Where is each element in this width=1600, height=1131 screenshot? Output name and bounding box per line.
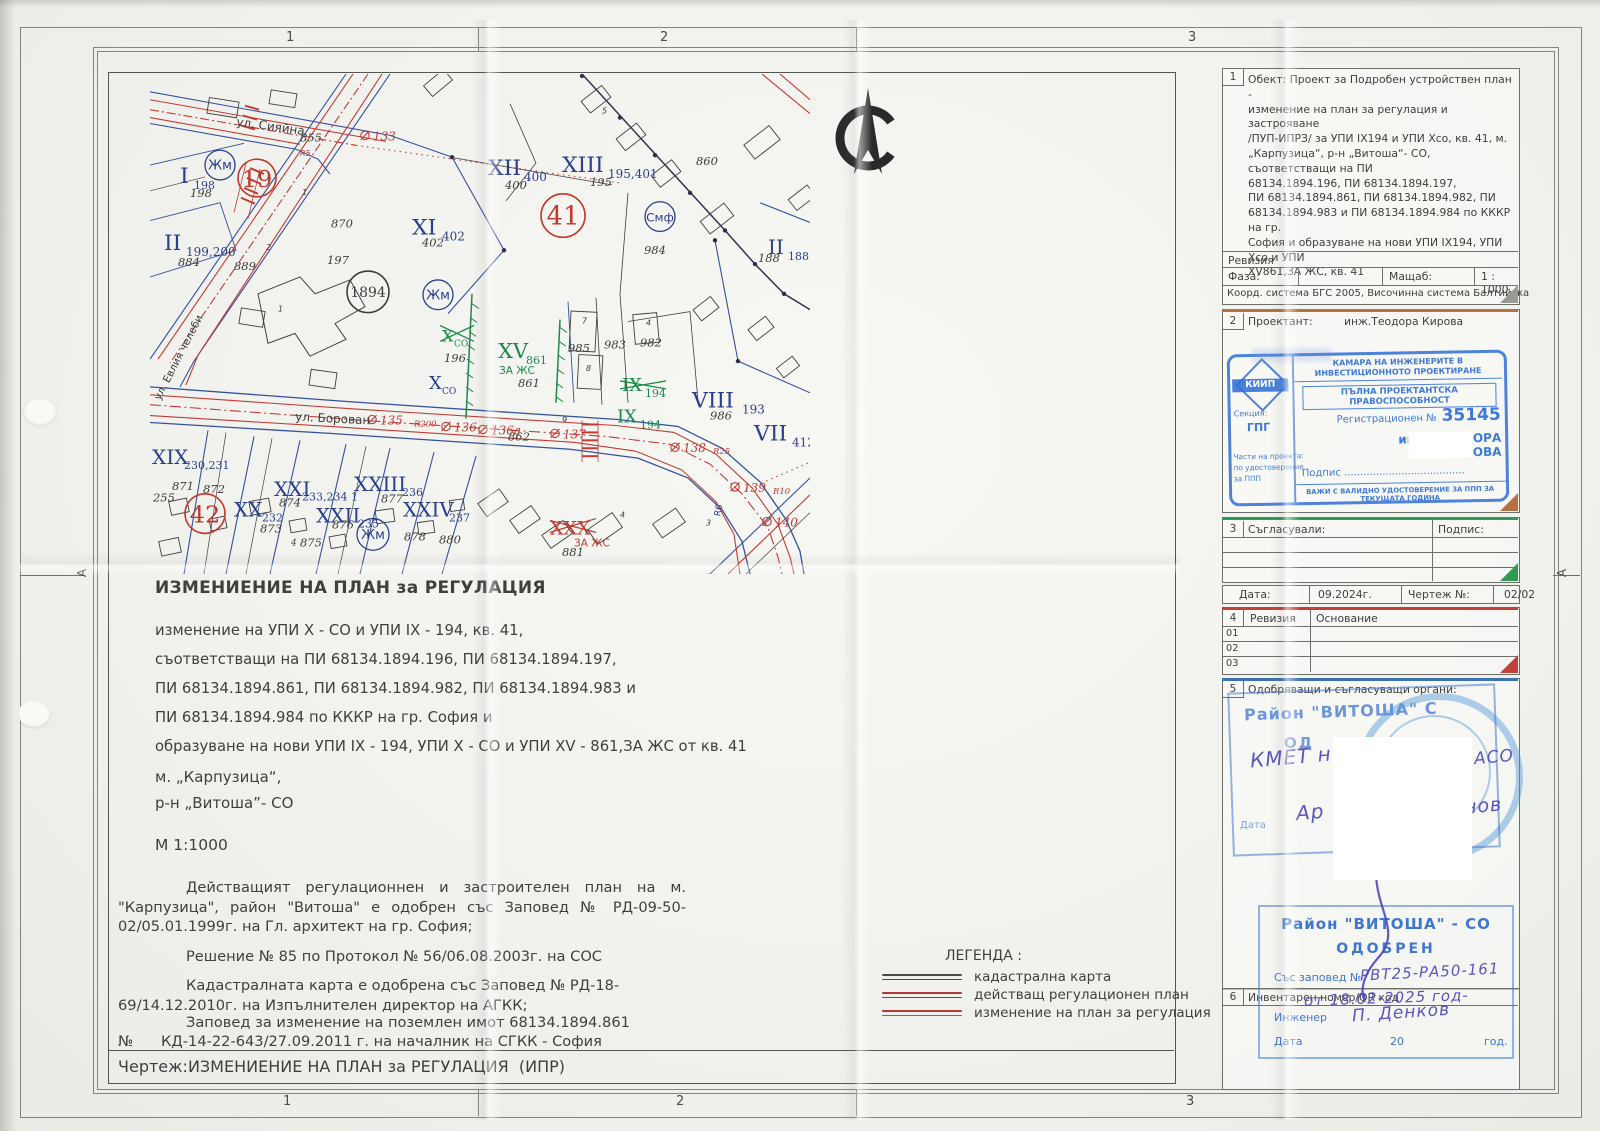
divider <box>1222 626 1518 627</box>
map-label: 233,234 1 <box>302 491 358 504</box>
revision-row-01: 01 <box>1226 628 1238 639</box>
legend-items: кадастрална картадействащ регулационен п… <box>882 968 1211 1022</box>
footer-bar: Чертеж:ИЗМЕНИЕНИЕ НА ПЛАН за РЕГУЛАЦИЯ (… <box>108 1050 1174 1083</box>
map-building-outline <box>258 277 365 356</box>
zone-number-top-2: 2 <box>660 30 668 45</box>
kiip-smudge <box>1252 348 1332 363</box>
map-label: 884 <box>178 255 200 269</box>
date-row: Дата: 09.2024г. Чертеж №: 02/02 <box>1222 585 1520 604</box>
map-line <box>150 387 804 574</box>
map-label: 7 <box>582 317 587 326</box>
zone-tick <box>478 27 479 51</box>
map-label: 188 <box>758 251 780 265</box>
map-label: СО <box>454 339 468 349</box>
map-building <box>653 508 686 538</box>
divider <box>1222 552 1518 553</box>
map-station-label: 136 <box>454 420 477 434</box>
map-label: XXIV <box>403 499 454 522</box>
map-label: 193 <box>742 403 765 417</box>
map-label: 4 <box>620 511 625 520</box>
map-label: 2 <box>266 243 271 252</box>
stamp-god: год. <box>1484 1035 1508 1048</box>
zone-tick <box>856 27 857 51</box>
map-label: 400 <box>504 178 527 192</box>
legend-item-label: кадастрална карта <box>974 969 1111 985</box>
map-label: 188 <box>788 250 809 263</box>
map-line <box>466 294 472 419</box>
map-line <box>780 74 810 100</box>
scale-label: Мащаб: <box>1382 268 1474 286</box>
zone-number-top-3: 3 <box>1188 30 1196 45</box>
map-hatch-tick <box>466 373 473 378</box>
map-zone-circle-label: 41 <box>546 202 579 232</box>
kiip-reg-number: 35145 <box>1441 405 1500 426</box>
map-label: 874 <box>279 496 301 510</box>
map-label: 236 <box>402 486 423 499</box>
map-label: 860 <box>696 154 718 168</box>
drawing-note-3: Кадастралната карта е одобрена със Запов… <box>118 976 686 1015</box>
divider <box>1432 520 1433 581</box>
kiip-parts: Части на проекта: по удостоверение за ПП… <box>1233 450 1304 484</box>
handwriting-ar: Ар <box>1295 799 1325 825</box>
legend-swatch <box>882 1010 962 1016</box>
map-survey-point <box>782 292 786 296</box>
drawing-heading: ИЗМЕНИЕНИЕ НА ПЛАН за РЕГУЛАЦИЯ <box>155 578 546 598</box>
map-building <box>510 506 540 534</box>
map-line <box>728 495 810 574</box>
map-label: СО <box>442 387 456 397</box>
map-label: 880 <box>439 532 461 546</box>
map-building <box>788 185 810 211</box>
section-2-colorbar <box>1222 309 1518 312</box>
signature-label: Подпис: <box>1438 523 1484 536</box>
map-building <box>744 126 780 160</box>
legend-swatch <box>882 974 962 980</box>
revision-row-03: 03 <box>1226 658 1238 669</box>
legend-item-0: кадастрална карта <box>882 968 1211 986</box>
map-building <box>329 534 347 548</box>
map-building <box>748 316 774 340</box>
map-station-radius: R25 <box>712 446 730 456</box>
map-building <box>269 90 297 108</box>
map-label: ЗА ЖС <box>574 537 610 549</box>
map-label: 986 <box>710 409 732 423</box>
scan-edge-top <box>0 0 1600 8</box>
map-label: 876 <box>332 518 354 532</box>
map-zone-circle-label: 1894 <box>350 285 386 301</box>
map-label: 871 <box>172 479 194 493</box>
section-1-number: 1 <box>1223 69 1244 86</box>
drawing-note-5: № КД-14-22-643/27.09.2011 г. на началник… <box>118 1033 686 1050</box>
map-label: 878 <box>404 529 426 543</box>
map-survey-point <box>618 115 622 119</box>
map-label: 873 <box>260 521 282 535</box>
map-label: 9 <box>562 416 567 425</box>
drawing-note-1: Действащият регулационнен и застроителен… <box>118 878 686 937</box>
map-label: 8 <box>586 364 591 373</box>
divider <box>1222 537 1518 538</box>
map-survey-point <box>580 74 584 78</box>
scanned-plan-sheet: 1 2 3 1 2 3 A A 133135R200136136а137138R… <box>0 0 1600 1131</box>
map-building <box>289 518 307 532</box>
section-3-colorbar <box>1222 517 1518 520</box>
map-label: 984 <box>644 243 666 257</box>
punch-hole <box>24 398 56 425</box>
map-station-radius: R200 <box>413 419 437 429</box>
map-label: 3 <box>706 519 711 528</box>
map-building <box>309 369 337 388</box>
map-station-label: 139 <box>743 481 766 495</box>
kiip-logo-text: КИИП <box>1232 378 1288 392</box>
map-zone-circle-label: 19 <box>242 165 273 193</box>
legend-item-label: изменение на план за регулация <box>974 1005 1211 1021</box>
map-station-label: 135 <box>380 414 403 428</box>
map-building <box>159 537 182 556</box>
kiip-section-value: ГПГ <box>1247 421 1270 434</box>
zone-number-top-1: 1 <box>286 30 294 45</box>
map-label: 872 <box>203 482 225 496</box>
map-zone-circle-label: Жм <box>208 159 232 174</box>
map-survey-point <box>753 262 757 266</box>
scan-edge-left <box>0 0 16 1131</box>
map-label: IX <box>622 375 642 396</box>
phase-value-empty <box>1298 268 1382 286</box>
legend-item-1: действащ регулационен план <box>882 986 1211 1004</box>
map-label: 889 <box>234 259 256 273</box>
map-label: 4 <box>646 319 651 328</box>
map-line <box>620 193 628 294</box>
map-label: XXX <box>550 517 591 539</box>
map-label: 194 <box>645 387 666 400</box>
map-label: 1 <box>278 305 283 314</box>
map-line <box>150 416 740 574</box>
map-label: 877 <box>381 492 404 506</box>
map-label: 194 <box>640 419 661 432</box>
divider <box>1222 656 1518 657</box>
stamp-date-label: Дата <box>1274 1035 1302 1048</box>
map-label: 412 <box>792 435 810 449</box>
map-label: IX <box>617 407 637 428</box>
section-5-colorbar <box>1222 678 1518 681</box>
map-label: 1 <box>302 188 307 197</box>
punch-hole <box>18 700 50 727</box>
map-station-label: 137 <box>563 427 586 441</box>
map-survey-point <box>450 155 454 159</box>
kiip-reg-row: Регистрационен № 35145 <box>1295 405 1501 429</box>
revision-label: Ревизия <box>1228 254 1274 267</box>
map-hatch-tick <box>472 304 479 309</box>
map-survey-point <box>713 238 717 242</box>
revision-row-02: 02 <box>1226 643 1238 654</box>
legend-item-label: действащ регулационен план <box>974 987 1189 1003</box>
divider <box>1222 641 1518 642</box>
zone-number-bottom-1: 1 <box>283 1094 291 1109</box>
legend-title: ЛЕГЕНДА : <box>945 948 1022 964</box>
agreed-label: Съгласували: <box>1248 523 1325 536</box>
map-label: 235 <box>358 518 379 531</box>
map-building <box>616 123 646 151</box>
map-zone-circle-label: Жм <box>426 288 450 303</box>
map-survey-point <box>688 191 692 195</box>
map-station-label: 133 <box>373 129 396 143</box>
map-label: XV <box>498 339 529 363</box>
drawing-scale: М 1:1000 <box>155 836 228 854</box>
kiip-stamp: КИИП Секция: ГПГ Части на проекта: по уд… <box>1227 350 1510 507</box>
corner-mark-green <box>1500 563 1518 581</box>
corner-mark-red <box>1500 655 1518 673</box>
map-label: 982 <box>640 335 662 349</box>
section-6-number: 6 <box>1223 989 1244 1006</box>
map-station-label: 140 <box>775 516 798 530</box>
drawing-location: м. „Карпузица“, р-н „Витоша”- СО <box>155 764 293 816</box>
map-label: II <box>164 231 181 256</box>
map-label: 255 <box>152 491 175 505</box>
kiip-validity: ВАЖИ С ВАЛИДНО УДОСТОВЕРЕНИЕ ЗА ППП ЗА Т… <box>1294 481 1506 505</box>
map-label: 400 <box>524 170 547 184</box>
revision-col-label: Ревизия <box>1250 612 1296 625</box>
map-label: 402 <box>421 235 444 249</box>
map-building <box>478 489 508 517</box>
map-survey-point <box>736 359 740 363</box>
map-station-radius: R10 <box>772 486 791 496</box>
map-label: 402 <box>442 229 465 243</box>
map-label: XX <box>234 499 263 522</box>
legend-item-2: изменение на план за регулация <box>882 1004 1211 1022</box>
designer-name: инж.Теодора Кирова <box>1344 315 1463 328</box>
map-zone-circle-label: 42 <box>190 501 221 529</box>
zone-tick <box>478 1090 479 1116</box>
zone-number-bottom-2: 2 <box>676 1094 684 1109</box>
map-label: 196 <box>444 351 466 365</box>
map-hatch-tick <box>560 327 567 332</box>
map-label: 237 <box>449 512 470 525</box>
map-building <box>776 356 799 378</box>
drawing-paragraph: изменение на УПИ X - СО и УПИ IX - 194, … <box>155 616 795 761</box>
map-label: R5 <box>300 149 311 158</box>
coord-system: Коорд. система БГС 2005, Височинна систе… <box>1227 288 1529 299</box>
map-label: 195,401 <box>608 167 658 181</box>
map-label: 197 <box>327 253 350 267</box>
map-label: X <box>429 373 442 394</box>
map-label: I <box>180 164 189 189</box>
map-zone-circle-label: Смф <box>646 211 674 225</box>
map-building <box>424 74 453 96</box>
object-text: Обект: Проект за Подробен устройствен пл… <box>1248 73 1514 280</box>
map-survey-point <box>653 153 657 157</box>
date-value: 09.2024г. <box>1309 586 1401 603</box>
map-line <box>582 74 810 310</box>
map-label: X <box>442 326 454 345</box>
drawing-note-2: Решение № 85 по Протокол № 56/06.08.2003… <box>118 948 686 965</box>
map-label: 985 <box>568 341 590 355</box>
kiip-section-label: Секция: <box>1234 409 1268 419</box>
map-hatch-tick <box>556 397 563 402</box>
map-hatch-tick <box>559 341 566 346</box>
north-arrow-icon <box>826 86 910 186</box>
redaction-box-large <box>1333 737 1472 880</box>
phase-row: Фаза: Мащаб: 1 : 1000 <box>1222 267 1518 286</box>
map-station-label: 138 <box>683 441 706 455</box>
drawing-number-value: 02/02 <box>1493 586 1535 603</box>
designer-label: Проектант: <box>1248 315 1313 328</box>
map-survey-point <box>502 248 506 252</box>
kiip-reg-label: Регистрационен № <box>1337 413 1437 426</box>
basis-col-label: Основание <box>1316 612 1378 625</box>
map-label: 5 <box>602 107 607 116</box>
divider <box>1222 567 1518 568</box>
map-building <box>693 296 719 320</box>
map-label: 875 <box>300 535 322 549</box>
kiip-sign-line: Подпис .................................… <box>1302 465 1465 479</box>
map-building <box>239 308 265 327</box>
map-label: 230,231 <box>184 459 229 472</box>
redaction-box-small <box>1408 431 1472 458</box>
map-label: 195 <box>590 175 612 189</box>
row-marker-right: A <box>1555 569 1569 577</box>
map-label: 198 <box>190 186 212 200</box>
drawing-number-label: Чертеж №: <box>1401 586 1493 603</box>
cadastral-map: 133135R200136136а137138R25139R1014019414… <box>150 74 810 574</box>
map-label: 861 <box>518 376 540 390</box>
zone-number-bottom-3: 3 <box>1186 1094 1194 1109</box>
map-label: 870 <box>331 217 353 231</box>
drawing-note-4: Заповед за изменение на поземлен имот 68… <box>118 1014 686 1031</box>
map-hatch-tick <box>558 355 565 360</box>
legend-swatch <box>882 992 962 998</box>
stamp-date-20: 20 <box>1390 1035 1404 1048</box>
map-label: 862 <box>508 429 530 443</box>
zone-tick <box>856 1090 857 1116</box>
section-3-number: 3 <box>1223 521 1244 538</box>
map-line <box>556 320 560 403</box>
row-marker-left: A <box>75 569 89 577</box>
engineer-label: Инженер <box>1274 1011 1327 1024</box>
corner-mark-gray <box>1500 285 1518 303</box>
divider <box>1222 251 1518 252</box>
scale-value: 1 : 1000 <box>1474 268 1518 286</box>
phase-label: Фаза: <box>1222 268 1298 286</box>
section-4-colorbar <box>1222 607 1518 610</box>
section-4-number: 4 <box>1223 610 1244 627</box>
coord-row: Коорд. система БГС 2005, Височинна систе… <box>1222 285 1518 304</box>
section-2-number: 2 <box>1223 313 1244 330</box>
map-label: 983 <box>604 337 626 351</box>
date-label: Дата: <box>1223 586 1309 603</box>
map-survey-point <box>723 228 727 232</box>
map-label: VII <box>753 421 787 446</box>
footer-text: Чертеж:ИЗМЕНИЕНИЕ НА ПЛАН за РЕГУЛАЦИЯ (… <box>118 1057 565 1076</box>
map-label: 4 <box>290 538 297 548</box>
